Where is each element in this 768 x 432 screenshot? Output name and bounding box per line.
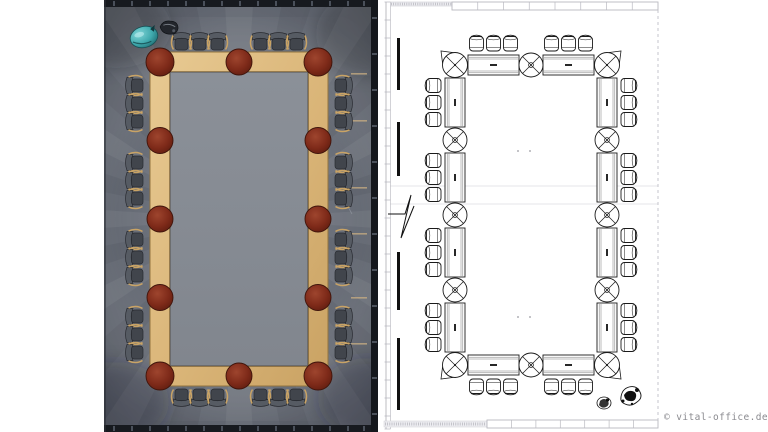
cad-mid-connector <box>595 128 619 152</box>
mid-connector <box>226 49 252 75</box>
cad-mid-connector <box>595 203 619 227</box>
left-edge <box>104 0 106 432</box>
mid-connector <box>226 363 252 389</box>
cad-mid-connector <box>519 53 543 77</box>
cad-view <box>382 0 668 432</box>
corner-connector <box>146 48 174 76</box>
cad-frame-bottom <box>384 420 658 428</box>
mid-connector <box>147 285 173 311</box>
cad-mid-connector <box>443 278 467 302</box>
mid-connector <box>305 206 331 232</box>
mid-connector <box>147 128 173 154</box>
mid-connector <box>305 285 331 311</box>
table-inner-floor <box>170 72 308 366</box>
cad-mid-connector <box>595 278 619 302</box>
mid-connector <box>147 206 173 232</box>
mid-connector <box>305 128 331 154</box>
render-view-panel <box>104 0 378 432</box>
cad-mid-connector <box>443 203 467 227</box>
corner-connector <box>304 362 332 390</box>
corner-connector <box>146 362 174 390</box>
corner-connector <box>304 48 332 76</box>
copyright-text: © vital-office.de <box>664 412 768 423</box>
planning-screenshot: © vital-office.de <box>0 0 768 432</box>
right-wall <box>371 0 378 432</box>
render-table <box>146 48 332 390</box>
cad-view-panel <box>382 0 668 432</box>
cad-mid-connector <box>443 128 467 152</box>
cad-mid-connector <box>519 353 543 377</box>
render-view <box>104 0 378 432</box>
